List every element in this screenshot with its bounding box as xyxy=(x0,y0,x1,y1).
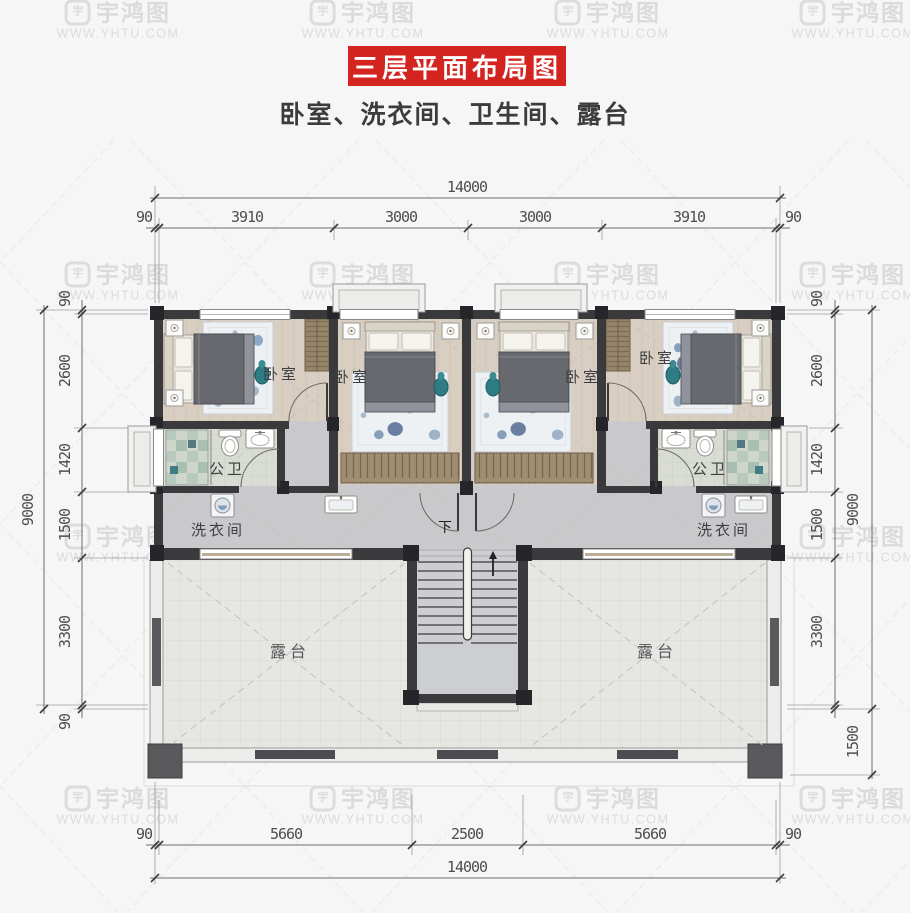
nightstand-icon xyxy=(343,323,360,339)
dim-bottom-5660-left: 5660 xyxy=(270,825,303,843)
sink-icon xyxy=(246,429,274,448)
washing-machine-icon xyxy=(211,494,234,517)
bedroom-4-label: 卧室 xyxy=(639,349,675,367)
dim-left-1420: 1420 xyxy=(56,443,74,476)
laundry-sink-icon xyxy=(735,496,767,513)
bedroom-2-label: 卧室 xyxy=(334,368,370,386)
bay-window xyxy=(495,284,587,320)
staircase xyxy=(417,548,518,711)
dresser-icon xyxy=(475,453,593,483)
dim-bottom-5660-right: 5660 xyxy=(634,825,667,843)
bed-icon xyxy=(499,322,569,412)
nightstand-icon xyxy=(166,320,183,336)
stairs-down-label: 下 xyxy=(438,520,452,536)
dim-right-1420: 1420 xyxy=(808,443,826,476)
bay-window xyxy=(333,284,425,320)
bathroom-right-label: 公卫 xyxy=(692,460,728,478)
floor-plan-page: 宇 宇鸿图 WWW.YHTU.COM 宇 宇鸿图 WWW.YHTU.COM 宇 … xyxy=(0,0,910,913)
nightstand-icon xyxy=(752,320,769,336)
terrace-slider xyxy=(583,549,735,559)
shower-area xyxy=(166,430,208,485)
terrace-corner-post xyxy=(148,744,182,778)
dim-right-1500: 1500 xyxy=(808,508,826,541)
dim-left-3300: 3300 xyxy=(56,615,74,648)
dim-left-total: 9000 xyxy=(19,493,37,526)
dim-top-3000-right: 3000 xyxy=(519,208,552,226)
floor-plan-drawing: 卧室 卧室 卧室 卧室 公卫 公卫 洗衣间 洗衣间 露台 露台 下 14000 xyxy=(0,0,910,913)
wardrobe-icon xyxy=(606,319,630,371)
dim-top-3910-left: 3910 xyxy=(231,208,264,226)
dim-right-90-top: 90 xyxy=(808,290,826,307)
terrace-right-label: 露台 xyxy=(637,642,677,661)
dim-right-extra-1500: 1500 xyxy=(844,725,862,758)
dim-top-3910-right: 3910 xyxy=(673,208,706,226)
dim-right-3300: 3300 xyxy=(808,615,826,648)
dim-left-90-bottom: 90 xyxy=(56,713,74,730)
nightstand-icon xyxy=(576,323,593,339)
terrace-slider xyxy=(200,549,352,559)
laundry-right-label: 洗衣间 xyxy=(697,521,751,539)
dim-left-2600: 2600 xyxy=(56,354,74,387)
dim-left-90-top: 90 xyxy=(56,290,74,307)
page-title: 三层平面布局图 xyxy=(352,48,562,85)
bedroom-1-label: 卧室 xyxy=(263,365,299,383)
nightstand-icon xyxy=(477,323,494,339)
dim-top-total: 14000 xyxy=(447,178,488,196)
dim-bottom-90-right: 90 xyxy=(785,825,802,843)
terrace-left-label: 露台 xyxy=(270,642,310,661)
dresser-icon xyxy=(341,453,459,483)
bedroom-3-label: 卧室 xyxy=(565,368,601,386)
washing-machine-icon xyxy=(702,494,725,517)
shower-area xyxy=(727,430,769,485)
dim-top-90-left: 90 xyxy=(136,208,153,226)
bay-window xyxy=(128,426,164,492)
dim-right-total: 9000 xyxy=(844,493,862,526)
dim-bottom-90-left: 90 xyxy=(136,825,153,843)
nightstand-icon xyxy=(752,390,769,406)
laundry-sink-icon xyxy=(325,496,357,513)
page-title-box: 三层平面布局图 xyxy=(348,46,566,86)
laundry-left-label: 洗衣间 xyxy=(191,521,245,539)
page-subtitle: 卧室、洗衣间、卫生间、露台 xyxy=(0,95,910,131)
dim-bottom-2500: 2500 xyxy=(451,825,484,843)
bay-window xyxy=(772,426,807,492)
dim-right-2600: 2600 xyxy=(808,354,826,387)
dim-top-3000-left: 3000 xyxy=(385,208,418,226)
bed-icon xyxy=(365,322,435,412)
dim-left-1500: 1500 xyxy=(56,508,74,541)
sink-icon xyxy=(662,429,690,448)
wardrobe-icon xyxy=(305,319,329,371)
dim-top-90-right: 90 xyxy=(785,208,802,226)
nightstand-icon xyxy=(442,323,459,339)
nightstand-icon xyxy=(166,390,183,406)
bathroom-left-label: 公卫 xyxy=(209,460,245,478)
dim-bottom-total: 14000 xyxy=(447,858,488,876)
terrace-corner-post xyxy=(748,744,782,778)
